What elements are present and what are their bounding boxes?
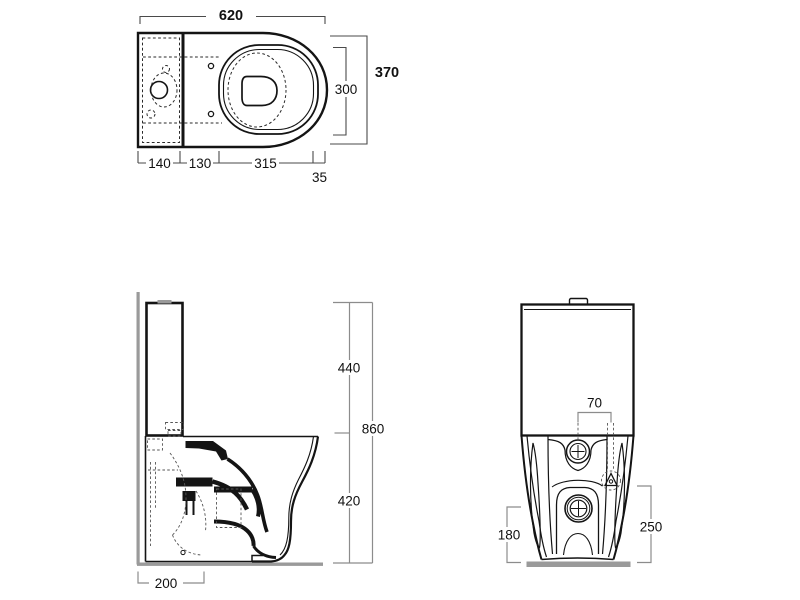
dim-heights: 440 860 420 xyxy=(333,303,390,564)
plan-fixing-hidden-2 xyxy=(163,66,170,73)
dim-200-label: 200 xyxy=(155,576,178,591)
toilet-dimension-drawing: 620 370 300 140 130 315 35 xyxy=(0,0,800,600)
technical-drawing-sheet: 620 370 300 140 130 315 35 xyxy=(0,0,800,600)
dim-130-label: 130 xyxy=(189,156,212,171)
plan-valve-hidden xyxy=(151,73,177,107)
side-flush-button xyxy=(158,300,172,304)
dim-total-width: 620 xyxy=(140,7,325,24)
plan-hinge-hole-bottom xyxy=(208,111,213,116)
front-mid-curve xyxy=(552,480,603,487)
dim-315-label: 315 xyxy=(254,156,277,171)
dim-bowl-width: 300 xyxy=(329,48,364,136)
plan-water-outline xyxy=(242,77,277,106)
side-cistern xyxy=(147,303,183,436)
dim-300-label: 300 xyxy=(335,82,358,97)
plan-hinge-hole-top xyxy=(208,63,213,68)
plan-cistern-hidden-edge xyxy=(143,38,180,143)
dim-250-label: 250 xyxy=(640,520,663,535)
dim-420-label: 420 xyxy=(338,494,361,509)
dim-180-label: 180 xyxy=(498,528,521,543)
front-panel-left-edge xyxy=(548,436,553,554)
dim-bottom-chain: 140 130 315 35 xyxy=(138,151,327,185)
side-view: 440 860 420 200 xyxy=(137,292,391,591)
dim-35-label: 35 xyxy=(312,170,327,185)
dim-620-label: 620 xyxy=(219,8,243,24)
dim-height-250: 250 xyxy=(634,486,668,563)
dim-height-180: 180 xyxy=(493,507,526,563)
front-panel-right-edge xyxy=(603,436,608,554)
front-channel-bump xyxy=(564,534,593,556)
dim-440-label: 440 xyxy=(338,361,361,376)
plan-fixing-hidden-1 xyxy=(147,110,155,118)
dim-140-label: 140 xyxy=(148,156,171,171)
floor-line xyxy=(137,563,323,566)
dim-860-label: 860 xyxy=(362,422,385,437)
wall-line xyxy=(137,292,140,565)
plan-inlet-hole xyxy=(151,82,168,99)
side-outer-profile xyxy=(252,437,318,562)
dim-outlet-depth: 200 xyxy=(138,572,204,592)
dim-370-label: 370 xyxy=(375,65,399,81)
front-body-bottom-edge xyxy=(542,558,614,560)
front-view: 70 180 250 xyxy=(493,299,669,568)
plan-seat-outer-ring xyxy=(219,45,318,134)
dim-70-label: 70 xyxy=(587,396,602,411)
front-floor-line xyxy=(527,562,631,568)
front-flush-inlet xyxy=(567,440,590,463)
side-section-cut xyxy=(176,441,276,558)
top-view: 620 370 300 140 130 315 35 xyxy=(138,7,399,185)
front-outlet-connection xyxy=(565,495,592,522)
